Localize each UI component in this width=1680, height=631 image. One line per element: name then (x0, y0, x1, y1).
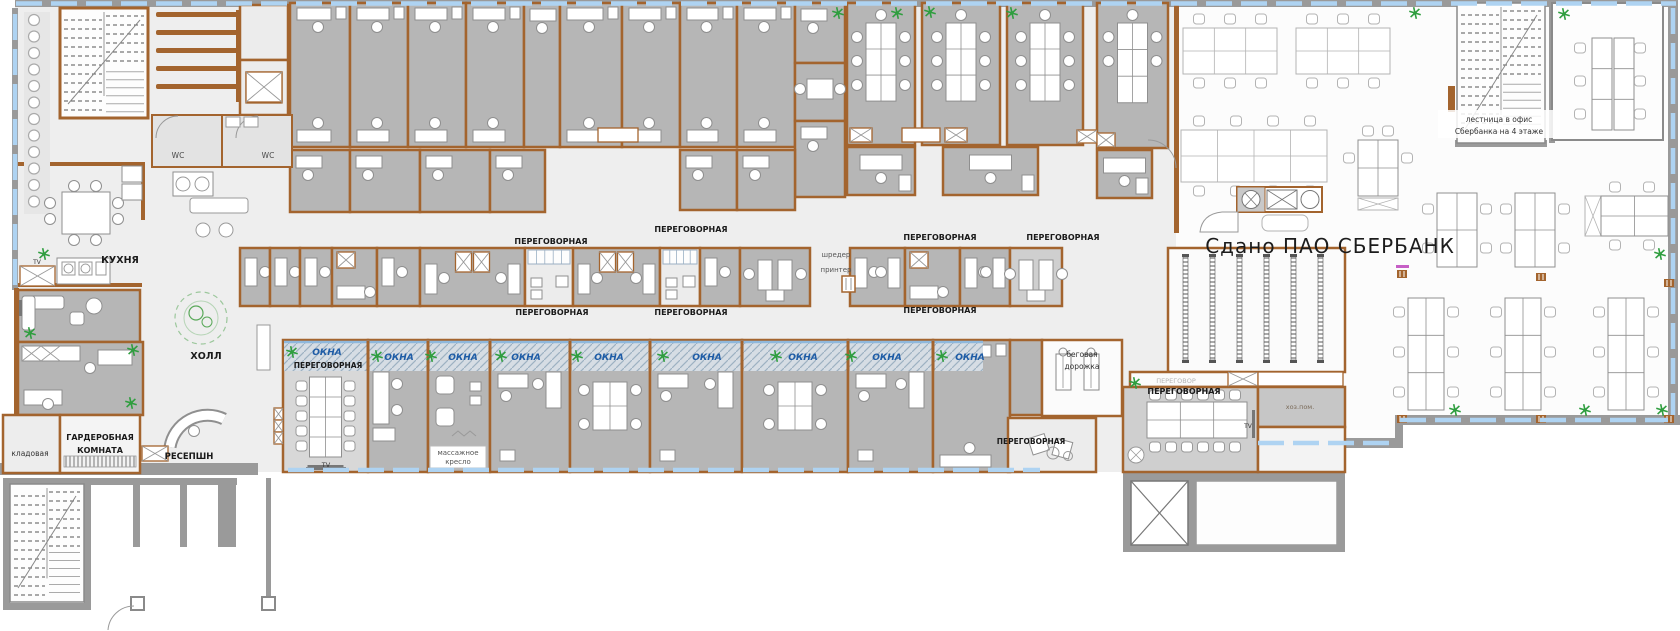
meeting-label-window-room: ПЕРЕГОВОРНАЯ (294, 361, 363, 370)
table-icon (470, 396, 481, 405)
chair-icon (938, 287, 949, 298)
chair-icon (1256, 14, 1267, 24)
sberbank-label: Сдано ПАО СБЕРБАНК (1205, 234, 1455, 258)
chair-icon (852, 56, 863, 67)
chair-icon (1635, 76, 1646, 86)
chair-icon (808, 23, 819, 34)
chair-icon (876, 267, 887, 278)
chair-icon (852, 80, 863, 91)
chair-icon (584, 22, 595, 33)
cabinet-icon (598, 128, 638, 142)
chair-icon (1231, 116, 1242, 126)
sofa-icon (1262, 215, 1308, 231)
chair-icon (796, 269, 807, 280)
plant-icon (42, 252, 46, 256)
chair-icon (1448, 347, 1459, 357)
chair-icon (1103, 56, 1114, 67)
desk-icon (498, 374, 528, 388)
desk-icon (940, 455, 991, 467)
chair-icon (45, 198, 56, 209)
desk-icon (1039, 260, 1053, 290)
room-room (1258, 427, 1345, 472)
hook-icon (29, 15, 40, 26)
desk-icon (356, 156, 382, 168)
tv-icon (1252, 410, 1255, 438)
cabinet-icon (781, 7, 791, 19)
chair-icon (932, 80, 943, 91)
treadmill-label-2: дорожка (1064, 362, 1099, 371)
meeting-label-large: ПЕРЕГОВОРНАЯ (1147, 387, 1220, 396)
tv-icon (19, 300, 22, 316)
chair-icon (296, 381, 307, 391)
chair-icon (631, 385, 642, 396)
chair-icon (296, 396, 307, 406)
chair-icon (313, 22, 324, 33)
chair-icon (1610, 182, 1621, 192)
coat-rack-icon (156, 66, 238, 71)
desk-icon (718, 372, 733, 408)
chair-icon (1501, 243, 1512, 253)
chair-icon (1127, 10, 1138, 21)
chair-icon (1016, 80, 1027, 91)
sofa-icon (22, 296, 35, 330)
chair-icon (1594, 387, 1605, 397)
chair-icon (932, 32, 943, 43)
desk-icon (860, 155, 902, 170)
floor-plan-svg: WCWCКУХНЯХОЛЛПЕРЕГОВОРНАЯПЕРЕГОВОРНАЯПЕР… (0, 0, 1680, 631)
desk-icon (508, 264, 520, 294)
kitchen-label: КУХНЯ (101, 255, 139, 266)
plant-icon (1658, 252, 1662, 256)
table-icon (1592, 38, 1612, 130)
meeting-label-top-3: ПЕРЕГОВОРНАЯ (903, 233, 976, 242)
desk-icon (705, 258, 717, 286)
tv-label-meeting: TV (321, 461, 331, 469)
hook-icon (29, 196, 40, 207)
chair-icon (1648, 347, 1659, 357)
meeting-label-bottom-3: ПЕРЕГОВОРНАЯ (903, 306, 976, 315)
chair-icon (1305, 116, 1316, 126)
chair-icon (985, 173, 996, 184)
desk-icon (744, 130, 776, 142)
desk-icon (337, 286, 365, 299)
chair-icon (816, 419, 827, 430)
chair-icon (296, 441, 307, 451)
chair-icon (1338, 78, 1349, 88)
ottoman-icon (196, 223, 210, 237)
chair-icon (320, 267, 331, 278)
structural-wall (91, 478, 237, 485)
chair-icon (1501, 204, 1512, 214)
desk-icon (687, 8, 718, 20)
hook-icon (29, 114, 40, 125)
chair-icon (1151, 32, 1162, 43)
chair-icon (1230, 390, 1241, 400)
chair-icon (1064, 80, 1075, 91)
floor-socket-icon (1536, 273, 1546, 281)
chair-icon (189, 426, 200, 437)
chair-icon (1610, 240, 1621, 250)
desk-icon (546, 372, 561, 408)
okna-label-3: ОКНА (448, 353, 478, 363)
hook-icon (29, 48, 40, 59)
cabinet-icon (996, 344, 1006, 356)
room (1196, 481, 1337, 545)
plant-icon (895, 11, 899, 15)
chair-icon (980, 32, 991, 43)
table-icon (683, 276, 695, 287)
structural-wall (1123, 472, 1131, 552)
cabinet-icon (1022, 175, 1034, 191)
structural-wall (1337, 472, 1345, 552)
chair-icon (1545, 307, 1556, 317)
okna-label-4: ОКНА (511, 353, 541, 363)
chair-icon (579, 419, 590, 430)
chair-icon (981, 267, 992, 278)
structural-wall (84, 478, 91, 610)
chair-icon (644, 118, 655, 129)
shredder-label: шредер (822, 251, 851, 259)
plant-icon (575, 354, 579, 358)
desk-icon (530, 9, 556, 21)
chair-icon (537, 23, 548, 34)
chair-icon (69, 181, 80, 192)
desk-icon (473, 130, 505, 142)
chair-icon (1383, 126, 1394, 136)
desk-icon (1104, 158, 1146, 173)
partition-wall (1174, 3, 1179, 233)
chair-icon (1119, 176, 1130, 187)
chair-icon (1194, 116, 1205, 126)
chair-icon (1194, 78, 1205, 88)
chair-icon (1198, 442, 1209, 452)
sb-stairs-label-2: Сбербанка на 4 этаже (1455, 127, 1544, 136)
structural-wall (218, 485, 236, 547)
desk-icon (629, 8, 661, 20)
chair-icon (1559, 243, 1570, 253)
chair-icon (344, 381, 355, 391)
cabinet-icon (531, 290, 542, 299)
desk-icon (245, 258, 257, 286)
chair-icon (344, 426, 355, 436)
desk-icon (807, 79, 833, 99)
structural-wall (266, 478, 271, 600)
desk-icon (993, 258, 1005, 288)
desk-icon (373, 428, 395, 441)
chair-icon (296, 426, 307, 436)
chair-icon (43, 399, 54, 410)
fridge-icon (122, 166, 142, 182)
cabinet-icon (723, 7, 733, 19)
chair-icon (705, 379, 716, 390)
chair-icon (1103, 32, 1114, 43)
cabinet-icon (394, 7, 404, 19)
treadmill-label-1: беговая (1066, 350, 1097, 359)
chair-icon (533, 379, 544, 390)
chair-icon (303, 170, 314, 181)
chair-icon (1307, 78, 1318, 88)
desk-icon (801, 9, 827, 21)
desk-icon (643, 264, 655, 294)
hook-icon (29, 180, 40, 191)
plant-icon (1562, 12, 1566, 16)
chair-icon (859, 391, 870, 402)
chair-icon (900, 80, 911, 91)
desk-icon (357, 130, 389, 142)
chair-icon (876, 10, 887, 21)
structural-wall (133, 485, 140, 547)
chair-icon (503, 170, 514, 181)
sink-icon (244, 117, 258, 127)
fridge-icon (122, 184, 142, 200)
cabinet-icon (1258, 372, 1343, 386)
chair-icon (1575, 43, 1586, 53)
column-post (262, 597, 275, 610)
chair-icon (1225, 14, 1236, 24)
massage-label-1: массажное (437, 449, 478, 457)
chair-icon (1150, 442, 1161, 452)
table-icon (62, 192, 110, 234)
rack-icon (1291, 256, 1296, 360)
chair-icon (1402, 153, 1413, 163)
chair-icon (1594, 347, 1605, 357)
chair-icon (1225, 78, 1236, 88)
desk-icon (687, 130, 718, 142)
okna-label-6: ОКНА (692, 353, 722, 363)
plant-icon (1583, 408, 1587, 412)
chair-icon (1559, 204, 1570, 214)
chair-icon (1394, 307, 1405, 317)
okna-label-7: ОКНА (788, 353, 818, 363)
desk-icon (658, 374, 688, 388)
meeting-label-top-1: ПЕРЕГОВОРНАЯ (514, 237, 587, 246)
structural-wall (180, 485, 187, 547)
chair-icon (644, 22, 655, 33)
meeting-label-top-2: ПЕРЕГОВОРНАЯ (654, 225, 727, 234)
table-icon (1614, 38, 1634, 130)
plant-icon (1413, 11, 1417, 15)
plant-icon (1133, 381, 1137, 385)
desk-icon (910, 286, 938, 299)
plant-icon (131, 348, 135, 352)
circle (176, 177, 190, 191)
rack-icon (1210, 256, 1215, 360)
desk-icon (744, 8, 776, 20)
desk-icon (801, 127, 827, 139)
desk-icon (98, 350, 132, 365)
rack-icon (1318, 256, 1323, 360)
desk-icon (275, 258, 287, 286)
floor-plan: WCWCКУХНЯХОЛЛПЕРЕГОВОРНАЯПЕРЕГОВОРНАЯПЕР… (0, 0, 1680, 631)
chair-icon (365, 287, 376, 298)
plant-icon (1660, 408, 1664, 412)
rack-icon (1236, 360, 1243, 363)
table-icon (556, 276, 568, 287)
desk-icon (296, 156, 322, 168)
rack-icon (1263, 360, 1270, 363)
cabinet-icon (608, 7, 618, 19)
chair-icon (693, 170, 704, 181)
floor-socket-icon (1664, 279, 1674, 287)
chair-icon (816, 385, 827, 396)
desk-icon (1019, 260, 1033, 290)
meeting-label-bottom-2: ПЕРЕГОВОРНАЯ (654, 308, 727, 317)
desk-icon (473, 8, 505, 20)
chair-icon (1194, 14, 1205, 24)
hook-icon (29, 130, 40, 141)
chair-icon (85, 363, 96, 374)
hook-icon (29, 147, 40, 158)
hook-icon (29, 81, 40, 92)
plant-icon (836, 11, 840, 15)
plant-icon (429, 354, 433, 358)
chair-icon (1016, 56, 1027, 67)
chair-icon (1545, 347, 1556, 357)
desk-icon (415, 8, 447, 20)
chair-icon (1545, 387, 1556, 397)
plant-icon (1010, 11, 1014, 15)
desk-icon (578, 264, 590, 294)
chair-icon (69, 235, 80, 246)
desk-icon (500, 450, 515, 461)
desk-icon (909, 372, 924, 408)
chair-icon (1491, 347, 1502, 357)
chair-icon (430, 22, 441, 33)
chair-icon (45, 214, 56, 225)
desk-icon (855, 258, 867, 288)
chair-icon (372, 118, 383, 129)
chair-icon (313, 118, 324, 129)
cabinet-icon (899, 175, 911, 191)
printer-label: принтер (821, 266, 853, 274)
chair-icon (661, 391, 672, 402)
chair-icon (759, 118, 770, 129)
chair-icon (1448, 387, 1459, 397)
desk-icon (660, 450, 675, 461)
desk-icon (567, 8, 603, 20)
chair-icon (501, 391, 512, 402)
chair-icon (430, 118, 441, 129)
chair-icon (1338, 14, 1349, 24)
room-small-room (240, 5, 288, 60)
desk-icon (766, 290, 784, 301)
room-storeroom (3, 415, 60, 473)
chair-icon (1363, 126, 1374, 136)
desk-icon (415, 130, 447, 142)
glass-front-icon (663, 250, 697, 264)
ottoman-icon (219, 223, 233, 237)
chair-icon (701, 22, 712, 33)
chair-icon (1481, 204, 1492, 214)
chair-icon (1182, 442, 1193, 452)
chair-icon (1268, 116, 1279, 126)
column-post (131, 597, 144, 610)
okna-label-1: ОКНА (312, 348, 342, 358)
hook-icon (29, 97, 40, 108)
cabinet-icon (452, 7, 462, 19)
chair-icon (1151, 56, 1162, 67)
chair-icon (592, 273, 603, 284)
table-icon (86, 298, 102, 314)
glass-front-icon (528, 250, 570, 264)
marker-icon (1396, 265, 1409, 268)
chair-icon (900, 32, 911, 43)
chair-icon (488, 22, 499, 33)
chair-icon (1369, 14, 1380, 24)
chair-icon (439, 273, 450, 284)
cabinet-icon (666, 290, 677, 299)
chair-icon (1064, 56, 1075, 67)
chair-icon (932, 56, 943, 67)
chair-icon (1016, 32, 1027, 43)
chair-icon (1214, 442, 1225, 452)
sb-stairs-label-1: лестница в офис (1466, 115, 1533, 124)
structural-wall (1188, 481, 1196, 545)
chair-icon (1594, 307, 1605, 317)
coat-rack-icon (156, 30, 238, 35)
chair-icon (1635, 43, 1646, 53)
chair-icon (631, 273, 642, 284)
chair-icon (852, 32, 863, 43)
desk-icon (426, 156, 452, 168)
chair-icon (1344, 153, 1355, 163)
chair-icon (1644, 240, 1655, 250)
tv-label-kitchen: TV (32, 259, 42, 266)
chair-icon (1575, 76, 1586, 86)
chair-icon (808, 141, 819, 152)
chair-icon (1064, 32, 1075, 43)
chair-icon (1005, 269, 1016, 280)
chair-icon (1491, 387, 1502, 397)
chair-icon (344, 441, 355, 451)
plant-icon (661, 354, 665, 358)
meeting-label-faint: ПЕРЕГОВОР (1156, 377, 1196, 385)
chair-icon (433, 170, 444, 181)
plant-icon (774, 354, 778, 358)
chair-icon (835, 84, 846, 95)
chair-icon (363, 170, 374, 181)
chair-icon (1423, 204, 1434, 214)
structural-wall (1123, 545, 1345, 552)
chair-icon (896, 379, 907, 390)
structural-wall (3, 603, 91, 610)
chair-icon (900, 56, 911, 67)
chair-icon (296, 411, 307, 421)
chair-icon (964, 443, 975, 454)
chair-icon (759, 22, 770, 33)
cabinet-icon (336, 7, 346, 19)
cabinet-icon (666, 7, 676, 19)
desk-icon (888, 258, 900, 288)
tv-label-large-meeting: TV (1243, 423, 1253, 430)
meeting-label-bottom-1: ПЕРЕГОВОРНАЯ (515, 308, 588, 317)
desk-icon (357, 8, 389, 20)
bench-icon (190, 198, 248, 213)
chair-icon (980, 56, 991, 67)
okna-label-8: ОКНА (872, 353, 902, 363)
plant-icon (129, 401, 133, 405)
partition-wall (1448, 86, 1455, 112)
chair-icon (1256, 78, 1267, 88)
chair-icon (91, 181, 102, 192)
chair-icon (1491, 307, 1502, 317)
chair-icon (1369, 78, 1380, 88)
plant-icon (499, 354, 503, 358)
rack-icon (1182, 360, 1189, 363)
printer-device-icon (842, 276, 855, 292)
chair-icon (496, 273, 507, 284)
armchair-icon (436, 376, 454, 394)
